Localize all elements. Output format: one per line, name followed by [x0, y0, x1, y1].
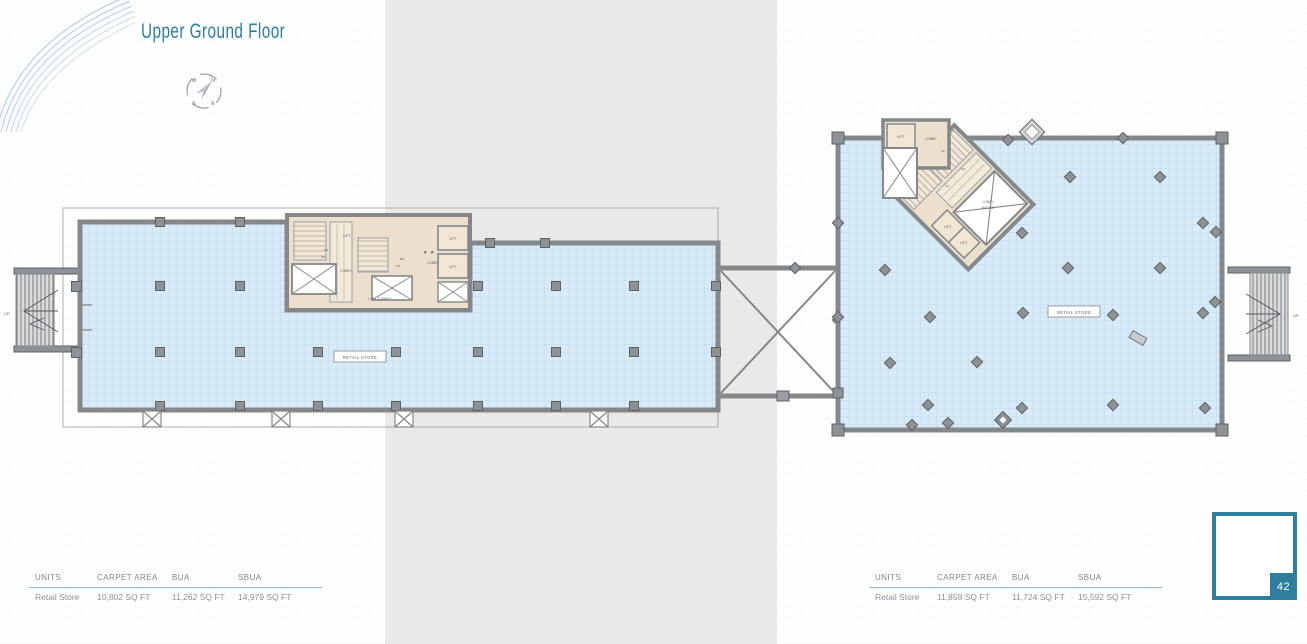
svg-text:LIFT: LIFT — [343, 234, 351, 238]
col-header-sbua: SBUA — [1078, 573, 1162, 587]
left-retail-store-tag: RETAIL STORE — [334, 351, 386, 362]
col-header-units: UNITS — [35, 573, 97, 587]
svg-text:DN: DN — [961, 167, 965, 171]
unit-name: Retail Store — [875, 592, 937, 602]
bua-value: 11,724 SQ FT — [1012, 592, 1078, 602]
right-building: LIFT LOBBY UP DN UP LOBBY BELOW LIFT LIF… — [832, 119, 1299, 436]
col-header-carpet-area: CARPET AREA — [937, 573, 1012, 587]
svg-text:UP: UP — [945, 184, 949, 188]
col-header-bua: BUA — [172, 573, 238, 587]
svg-text:LIFT: LIFT — [449, 237, 457, 241]
ramp-up-label: UP — [4, 311, 10, 316]
left-building: UP LIFT — [4, 208, 721, 427]
area-table-left: UNITS CARPET AREA BUA SBUA Retail Store … — [35, 573, 322, 602]
svg-text:LOBBY: LOBBY — [427, 261, 439, 265]
left-lift-core: LIFT DN UP LOBBY DN UP LOBBY LIFT LIFT L… — [287, 215, 470, 310]
svg-text:DN: DN — [400, 257, 404, 261]
page-number-badge: 42 — [1212, 512, 1297, 600]
svg-text:LOBBY: LOBBY — [340, 269, 352, 273]
svg-text:LIFT: LIFT — [449, 265, 457, 269]
col-header-sbua: SBUA — [238, 573, 322, 587]
brochure-page: Upper Ground Floor N W S E — [0, 0, 1307, 644]
svg-text:UP: UP — [941, 149, 945, 153]
left-ramp: UP — [4, 268, 78, 352]
area-table-right: UNITS CARPET AREA BUA SBUA Retail Store … — [875, 573, 1162, 602]
svg-text:LIFT: LIFT — [897, 135, 905, 139]
svg-text:RETAIL STORE: RETAIL STORE — [343, 355, 378, 360]
svg-text:BELOW: BELOW — [982, 206, 995, 210]
carpet-area-value: 10,802 SQ FT — [97, 592, 172, 602]
right-ramp: UP — [1228, 267, 1299, 361]
table-divider — [29, 587, 322, 588]
sbua-value: 15,592 SQ FT — [1078, 592, 1162, 602]
right-retail-store-tag: RETAIL STORE — [1048, 306, 1100, 317]
ramp-up-label-right: UP — [1293, 313, 1299, 318]
connecting-bridge — [718, 262, 844, 401]
col-header-carpet-area: CARPET AREA — [97, 573, 172, 587]
svg-text:LOBBY: LOBBY — [925, 137, 937, 141]
col-header-bua: BUA — [1012, 573, 1078, 587]
floor-plan-drawing: UP LIFT — [0, 0, 1307, 644]
left-building-xboxes — [143, 411, 608, 427]
bua-value: 11,262 SQ FT — [172, 592, 238, 602]
svg-text:UP: UP — [321, 255, 325, 259]
unit-name: Retail Store — [35, 592, 97, 602]
svg-text:LIFT: LIFT — [960, 241, 968, 245]
svg-text:UP: UP — [396, 264, 400, 268]
table-divider — [869, 587, 1162, 588]
carpet-area-value: 11,858 SQ FT — [937, 592, 1012, 602]
page-number: 42 — [1270, 573, 1297, 600]
col-header-units: UNITS — [875, 573, 937, 587]
svg-text:LIFT: LIFT — [944, 225, 952, 229]
svg-text:RETAIL STORE: RETAIL STORE — [1057, 310, 1092, 315]
sbua-value: 14,979 SQ FT — [238, 592, 322, 602]
svg-text:LOBBY: LOBBY — [983, 200, 995, 204]
svg-text:DN: DN — [324, 248, 328, 252]
svg-text:LIFT LOBBY: LIFT LOBBY — [368, 297, 392, 301]
